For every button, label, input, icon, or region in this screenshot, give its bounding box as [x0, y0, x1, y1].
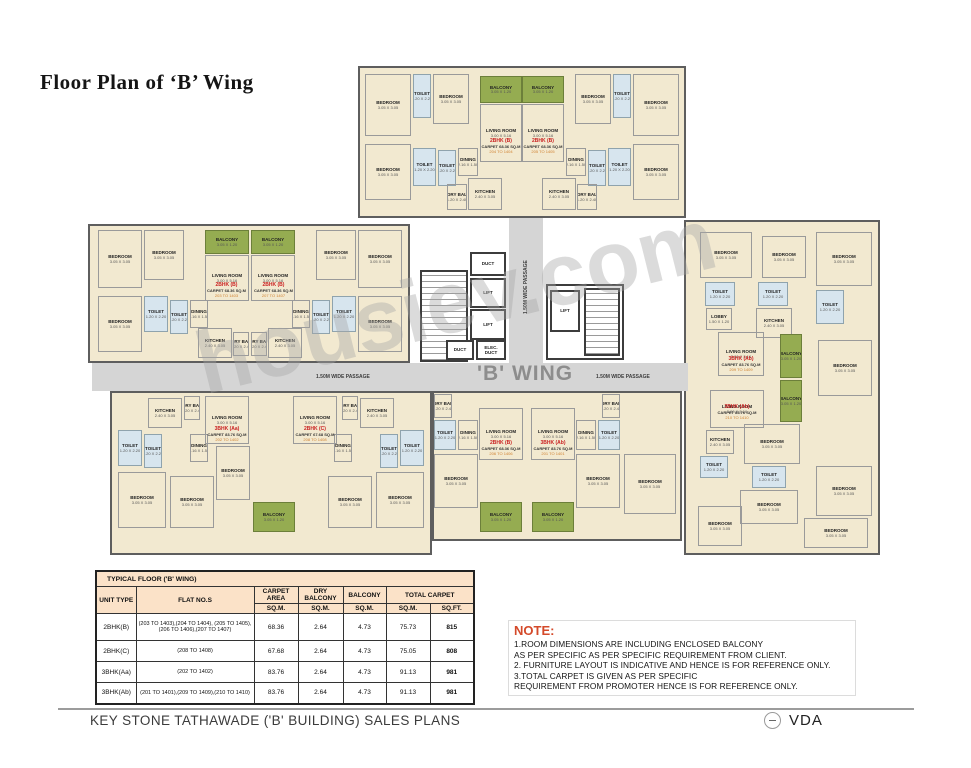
dry-bal-room: DRY BAL1.20 X 2.40	[447, 184, 467, 210]
room-dimensions: 1.20 X 2.20	[763, 295, 783, 299]
cell-dry: 2.64	[298, 683, 343, 704]
bedroom-room: BEDROOM3.05 X 3.05	[316, 230, 356, 280]
note-line: 2. FURNITURE LAYOUT IS INDICATIVE AND HE…	[514, 660, 850, 671]
bedroom-room: BEDROOM3.05 X 3.05	[328, 476, 372, 528]
room-dimensions: 3.05 X 1.20	[533, 90, 553, 94]
room-dimensions: 3.05 X 3.05	[132, 501, 152, 505]
room-dimensions: 1.20 X 2.40	[342, 409, 358, 413]
bedroom-room: BEDROOM3.05 X 3.05	[633, 144, 679, 200]
duct: DUCT	[446, 340, 474, 360]
room-dimensions: 3.05 X 1.20	[264, 518, 284, 522]
toilet: TOILET1.20 X 2.20	[613, 74, 631, 118]
table-row: 3BHK(Aa)(202 TO 1402)83.762.644.7391.139…	[96, 662, 474, 683]
room-dimensions: 3.05 X 3.05	[759, 508, 779, 512]
cell-tsqm: 91.13	[386, 683, 430, 704]
unit-flats-text: 201 TO 1401	[531, 451, 575, 456]
room-dimensions: 2.40 X 3.05	[549, 195, 569, 199]
unit-flats-text: 207 TO 1407	[251, 293, 296, 298]
room-dimensions: 3.05 X 3.05	[390, 501, 410, 505]
toilet: TOILET1.20 X 2.20	[588, 150, 606, 186]
cell-flats: (201 TO 1401),(209 TO 1409),(210 TO 1410…	[136, 683, 254, 704]
room-dimensions: 2.16 X 1.50	[190, 449, 208, 453]
room-dimensions: 3.05 X 3.05	[370, 260, 390, 264]
cell-dry: 2.64	[298, 614, 343, 641]
room-dimensions: 1.20 X 2.20	[312, 318, 330, 322]
room-dimensions: 3.00 X 5.16	[305, 421, 325, 425]
cell-carpet: 67.68	[254, 641, 298, 662]
room-dimensions: 2.40 X 3.05	[205, 344, 225, 348]
room-dimensions: 3.05 X 3.05	[716, 256, 736, 260]
room-dimensions: 1.50 X 1.20	[709, 320, 729, 324]
room-dimensions: 3.05 X 3.05	[762, 445, 782, 449]
room-dimensions: 3.05 X 1.20	[263, 243, 283, 247]
core-label: LIFT	[483, 322, 493, 327]
room-dimensions: 1.20 X 2.20	[146, 315, 166, 319]
kitchen-room: KITCHEN2.40 X 3.05	[360, 398, 394, 428]
table-title: TYPICAL FLOOR ('B' WING)	[96, 571, 474, 587]
cell-dry: 2.64	[298, 662, 343, 683]
bedroom-room: BEDROOM3.05 X 3.05	[376, 472, 424, 528]
dining-room: DINING2.16 X 1.50	[576, 420, 596, 450]
col-balcony: BALCONY	[343, 587, 386, 604]
cell-unit: 2BHK(B)	[96, 614, 136, 641]
bedroom-room: BEDROOM3.05 X 3.05	[740, 490, 798, 524]
bedroom-room: BEDROOM3.05 X 3.05	[118, 472, 166, 528]
bedroom-room: BEDROOM3.05 X 3.05	[433, 74, 469, 124]
room-dimensions: 3.00 X 5.16	[491, 435, 511, 439]
unit-type-label: 2BHK (B)CARPET 68.36 SQ.M204 TO 1404	[479, 138, 523, 156]
room-dimensions: 3.05 X 1.20	[781, 402, 801, 406]
bedroom-room: BEDROOM3.05 X 3.05	[816, 232, 872, 286]
cell-tsqft: 981	[430, 662, 474, 683]
cell-unit: 3BHK(Aa)	[96, 662, 136, 683]
room-dimensions: 1.20 X 2.40	[184, 409, 200, 413]
kitchen-room: KITCHEN2.40 X 3.05	[268, 328, 302, 358]
room-dimensions: 3.05 X 3.05	[646, 173, 666, 177]
note-line: REQUIREMENT FROM PROMOTER HENCE IS FOR R…	[514, 681, 850, 692]
toilet: TOILET1.20 X 2.20	[144, 434, 162, 468]
vda-logo: VDA	[764, 712, 823, 729]
unit-sqm: SQ.M.	[343, 604, 386, 614]
lift: LIFT	[550, 290, 580, 332]
room-dimensions: 1.20 X 2.20	[414, 168, 434, 172]
unit-flats-text: 204 TO 1404	[479, 149, 523, 154]
unit-flats-text: 205 TO 1405	[521, 149, 565, 154]
note-heading: NOTE:	[514, 624, 850, 639]
unit-type-label: 3BHK (Ab)CARPET 83.76 SQ.M209 TO 1409	[716, 356, 766, 374]
room-dimensions: 1.20 X 2.20	[613, 97, 631, 101]
room-dimensions: 3.05 X 3.05	[710, 527, 730, 531]
room-dimensions: 1.20 X 2.40	[447, 198, 467, 202]
core-label: LIFT	[483, 290, 493, 295]
room-dimensions: 3.00 X 5.16	[217, 421, 237, 425]
room-dimensions: 3.05 X 3.05	[441, 100, 461, 104]
room-dimensions: 2.40 X 3.05	[710, 443, 730, 447]
bedroom-room: BEDROOM3.05 X 3.05	[816, 466, 872, 516]
toilet: TOILET1.20 X 2.20	[816, 290, 844, 324]
dry-bal-room: DRY BAL1.20 X 2.40	[251, 332, 267, 356]
toilet: TOILET1.20 X 2.20	[752, 466, 786, 488]
footer-divider	[58, 708, 914, 710]
dry-bal-room: DRY BAL1.20 X 2.40	[184, 396, 200, 420]
kitchen-room: KITCHEN2.40 X 3.05	[148, 398, 182, 428]
balcony: BALCONY3.05 X 1.20	[522, 76, 564, 103]
unit-type-label: 2BHK (B)CARPET 68.36 SQ.M205 TO 1405	[521, 138, 565, 156]
room-dimensions: 3.05 X 3.05	[834, 260, 854, 264]
unit-type-label: 2BHK (C)CARPET 67.68 SQ.M208 TO 1408	[293, 426, 337, 444]
balcony: BALCONY3.05 X 1.20	[532, 502, 574, 532]
room-dimensions: 2.16 X 1.50	[458, 436, 478, 440]
passage-label-right: 1.50M WIDE PASSAGE	[596, 374, 650, 380]
room-dimensions: 1.20 X 2.20	[334, 315, 354, 319]
room-dimensions: 3.05 X 3.05	[340, 503, 360, 507]
unit-flats-text: 206 TO 1406	[479, 451, 523, 456]
cell-tsqft: 981	[430, 683, 474, 704]
unit-flats-text: 202 TO 1402	[205, 437, 249, 442]
bedroom-room: BEDROOM3.05 X 3.05	[744, 424, 800, 464]
wing-label: 'B' WING	[477, 362, 573, 386]
room-dimensions: 1.20 X 2.40	[434, 407, 452, 411]
duct: DUCT	[470, 252, 506, 276]
unit-type-label: 3BHK (Ab)CARPET 83.76 SQ.M201 TO 1401	[531, 440, 575, 458]
toilet: TOILET1.20 X 2.20	[758, 282, 788, 306]
toilet: TOILET1.20 X 2.20	[144, 296, 168, 332]
bedroom-room: BEDROOM3.05 X 3.05	[358, 296, 402, 352]
room-dimensions: 1.20 X 2.20	[820, 308, 840, 312]
cell-bal: 4.73	[343, 641, 386, 662]
room-dimensions: 2.40 X 3.05	[155, 414, 175, 418]
unit-flats-text: 209 TO 1409	[716, 367, 766, 372]
room-dimensions: 3.05 X 3.05	[774, 258, 794, 262]
balcony: BALCONY3.05 X 1.20	[780, 380, 802, 422]
dry-bal-room: DRY BAL1.20 X 2.40	[434, 394, 452, 418]
dry-bal-room: DRY BAL1.20 X 2.40	[577, 184, 597, 210]
elec-duct: ELEC. DUCT	[476, 340, 506, 360]
dry-bal-room: DRY BAL1.20 X 2.40	[233, 332, 249, 356]
unit-sqft: SQ.FT.	[430, 604, 474, 614]
core-label: ELEC. DUCT	[478, 345, 504, 356]
lobby-room: LOBBY1.50 X 1.20	[706, 308, 732, 330]
staircase	[584, 288, 620, 356]
core-label: DUCT	[454, 347, 467, 352]
room-dimensions: 3.05 X 1.20	[543, 518, 563, 522]
bedroom-room: BEDROOM3.05 X 3.05	[365, 144, 411, 200]
room-dimensions: 2.16 X 1.50	[190, 315, 208, 319]
unit-type-label: 3BHK (Aa)CARPET 83.76 SQ.M202 TO 1402	[205, 426, 249, 444]
lift: LIFT	[470, 278, 506, 308]
bedroom-room: BEDROOM3.05 X 3.05	[633, 74, 679, 136]
room-dimensions: 3.05 X 3.05	[583, 100, 603, 104]
kitchen-room: KITCHEN2.40 X 3.05	[706, 430, 734, 454]
room-dimensions: 2.16 X 1.50	[576, 436, 596, 440]
room-dimensions: 2.16 X 1.50	[458, 163, 478, 167]
room-dimensions: 1.20 X 2.20	[710, 295, 730, 299]
toilet: TOILET1.20 X 2.20	[434, 420, 456, 450]
core-label: LIFT	[560, 308, 570, 313]
cell-flats: (208 TO 1408)	[136, 641, 254, 662]
room-dimensions: 3.05 X 3.05	[370, 325, 390, 329]
toilet: TOILET1.20 X 2.20	[413, 148, 436, 186]
col-unit-type: UNIT TYPE	[96, 587, 136, 614]
bedroom-room: BEDROOM3.05 X 3.05	[170, 476, 214, 528]
unit-flats-text: 210 TO 1410	[710, 415, 764, 420]
balcony: BALCONY3.05 X 1.20	[205, 230, 249, 254]
room-dimensions: 3.05 X 3.05	[640, 485, 660, 489]
kitchen-room: KITCHEN2.40 X 3.05	[198, 328, 232, 358]
table-row: 2BHK(B)(203 TO 1403),(204 TO 1404), (205…	[96, 614, 474, 641]
room-dimensions: 3.05 X 3.05	[378, 173, 398, 177]
unit-type-label: 2BHK (B)CARPET 68.36 SQ.M203 TO 1403	[204, 282, 249, 300]
unit-type-label: 2BHK (B)CARPET 68.36 SQ.M207 TO 1407	[251, 282, 296, 300]
note-line: AS PER SPECIFIC AS PER SPECIFIC REQUIREM…	[514, 650, 850, 661]
balcony: BALCONY3.05 X 1.20	[480, 76, 522, 103]
room-dimensions: 1.20 X 2.20	[588, 169, 606, 173]
toilet: TOILET1.20 X 2.20	[332, 296, 356, 332]
note-lines: 1.ROOM DIMENSIONS ARE INCLUDING ENCLOSED…	[514, 639, 850, 692]
kitchen-room: KITCHEN2.40 X 3.05	[468, 178, 502, 210]
toilet: TOILET1.20 X 2.20	[118, 430, 142, 466]
room-dimensions: 3.05 X 3.05	[826, 534, 846, 538]
cell-bal: 4.73	[343, 683, 386, 704]
bedroom-room: BEDROOM3.05 X 3.05	[216, 446, 250, 500]
col-total-carpet: TOTAL CARPET	[386, 587, 474, 604]
cell-bal: 4.73	[343, 662, 386, 683]
room-dimensions: 1.20 X 2.40	[233, 345, 249, 349]
room-dimensions: 2.16 X 1.50	[334, 449, 352, 453]
cell-bal: 4.73	[343, 614, 386, 641]
cell-carpet: 83.76	[254, 662, 298, 683]
room-dimensions: 3.05 X 3.05	[223, 474, 243, 478]
room-dimensions: 1.20 X 2.20	[609, 168, 629, 172]
room-dimensions: 1.20 X 2.20	[438, 169, 456, 173]
room-dimensions: 2.40 X 3.05	[764, 324, 784, 328]
unit-sqm: SQ.M.	[254, 604, 298, 614]
unit-flats-text: 203 TO 1403	[204, 293, 249, 298]
col-carpet-area: CARPET AREA	[254, 587, 298, 604]
vda-logo-text: VDA	[789, 712, 823, 729]
room-dimensions: 3.05 X 3.05	[110, 260, 130, 264]
room-dimensions: 1.20 X 2.20	[599, 436, 619, 440]
room-dimensions: 1.20 X 2.40	[251, 345, 267, 349]
bedroom-room: BEDROOM3.05 X 3.05	[576, 454, 620, 508]
bedroom-room: BEDROOM3.05 X 3.05	[144, 230, 184, 280]
table-row: 2BHK(C)(208 TO 1408)67.682.644.7375.0580…	[96, 641, 474, 662]
bedroom-room: BEDROOM3.05 X 3.05	[818, 340, 872, 396]
room-dimensions: 3.05 X 3.05	[834, 492, 854, 496]
cell-tsqm: 75.05	[386, 641, 430, 662]
room-dimensions: 1.20 X 2.20	[120, 449, 140, 453]
passage-label-vertical: 1.50M WIDE PASSAGE	[523, 262, 529, 314]
bedroom-room: BEDROOM3.05 X 3.05	[365, 74, 411, 136]
room-dimensions: 1.20 X 2.40	[577, 198, 597, 202]
room-dimensions: 3.05 X 3.05	[110, 325, 130, 329]
room-dimensions: 3.05 X 3.05	[154, 256, 174, 260]
balcony: BALCONY3.05 X 1.20	[253, 502, 295, 532]
note-box: NOTE: 1.ROOM DIMENSIONS ARE INCLUDING EN…	[508, 620, 856, 696]
kitchen-room: KITCHEN2.40 X 3.05	[542, 178, 576, 210]
room-dimensions: 3.05 X 3.05	[835, 369, 855, 373]
bedroom-room: BEDROOM3.05 X 3.05	[358, 230, 402, 288]
cell-carpet: 83.76	[254, 683, 298, 704]
unit-sqm: SQ.M.	[298, 604, 343, 614]
bedroom-room: BEDROOM3.05 X 3.05	[700, 232, 752, 278]
room-dimensions: 1.20 X 2.20	[413, 97, 431, 101]
bedroom-room: BEDROOM3.05 X 3.05	[434, 454, 478, 508]
unit-type-label: 3BHK (Ab)CARPET 83.76 SQ.M210 TO 1410	[710, 404, 764, 422]
col-dry-balcony: DRY BALCONY	[298, 587, 343, 604]
bedroom-room: BEDROOM3.05 X 3.05	[98, 296, 142, 352]
room-dimensions: 1.20 X 2.40	[602, 407, 620, 411]
vda-circle-icon	[764, 712, 781, 729]
cell-flats: (202 TO 1402)	[136, 662, 254, 683]
room-dimensions: 2.16 X 1.50	[292, 315, 310, 319]
dining-room: DINING2.16 X 1.50	[458, 148, 478, 176]
area-table: TYPICAL FLOOR ('B' WING) UNIT TYPE FLAT …	[95, 570, 475, 705]
room-dimensions: 3.05 X 3.05	[446, 482, 466, 486]
toilet: TOILET1.20 X 2.20	[705, 282, 735, 306]
bedroom-room: BEDROOM3.05 X 3.05	[98, 230, 142, 288]
room-dimensions: 3.05 X 1.20	[491, 518, 511, 522]
dry-bal-room: DRY BAL1.20 X 2.40	[342, 396, 358, 420]
toilet: TOILET1.20 X 2.20	[598, 420, 620, 450]
cell-unit: 2BHK(C)	[96, 641, 136, 662]
cell-dry: 2.64	[298, 641, 343, 662]
room-dimensions: 1.20 X 2.20	[380, 452, 398, 456]
toilet: TOILET1.20 X 2.20	[608, 148, 631, 186]
room-dimensions: 3.05 X 1.20	[781, 357, 801, 361]
room-dimensions: 1.20 X 2.20	[759, 478, 779, 482]
toilet: TOILET1.20 X 2.20	[400, 430, 424, 466]
toilet: TOILET1.20 X 2.20	[170, 300, 188, 334]
room-dimensions: 3.05 X 3.05	[326, 256, 346, 260]
room-dimensions: 3.00 X 5.16	[543, 435, 563, 439]
bedroom-room: BEDROOM3.05 X 3.05	[575, 74, 611, 124]
cell-tsqm: 91.13	[386, 662, 430, 683]
bedroom-room: BEDROOM3.05 X 3.05	[624, 454, 676, 514]
cell-carpet: 68.36	[254, 614, 298, 641]
dry-bal-room: DRY BAL1.20 X 2.40	[602, 394, 620, 418]
room-dimensions: 1.20 X 2.20	[704, 468, 724, 472]
balcony: BALCONY3.05 X 1.20	[480, 502, 522, 532]
balcony: BALCONY3.05 X 1.20	[780, 334, 802, 378]
toilet: TOILET1.20 X 2.20	[700, 456, 728, 478]
unit-sqm: SQ.M.	[386, 604, 430, 614]
cell-tsqft: 815	[430, 614, 474, 641]
room-dimensions: 3.05 X 1.20	[217, 243, 237, 247]
table-row: 3BHK(Ab)(201 TO 1401),(209 TO 1409),(210…	[96, 683, 474, 704]
note-line: 3.TOTAL CARPET IS GIVEN AS PER SPECIFIC	[514, 671, 850, 682]
cell-unit: 3BHK(Ab)	[96, 683, 136, 704]
bedroom-room: BEDROOM3.05 X 3.05	[762, 236, 806, 278]
col-flat-nos: FLAT NO.S	[136, 587, 254, 614]
toilet: TOILET1.20 X 2.20	[312, 300, 330, 334]
room-dimensions: 2.40 X 3.05	[367, 414, 387, 418]
cell-tsqft: 808	[430, 641, 474, 662]
cell-flats: (203 TO 1403),(204 TO 1404), (205 TO 140…	[136, 614, 254, 641]
room-dimensions: 2.16 X 1.50	[566, 163, 586, 167]
room-dimensions: 3.05 X 3.05	[182, 503, 202, 507]
dining-room: DINING2.16 X 1.50	[292, 300, 310, 328]
dining-room: DINING2.16 X 1.50	[458, 420, 478, 450]
cell-tsqm: 75.73	[386, 614, 430, 641]
unit-type-label: 2BHK (B)CARPET 68.36 SQ.M206 TO 1406	[479, 440, 523, 458]
unit-flats-text: 208 TO 1408	[293, 437, 337, 442]
footer-title: KEY STONE TATHAWADE ('B' BUILDING) SALES…	[90, 713, 460, 728]
room-dimensions: 1.20 X 2.20	[402, 449, 422, 453]
balcony: BALCONY3.05 X 1.20	[251, 230, 295, 254]
note-line: 1.ROOM DIMENSIONS ARE INCLUDING ENCLOSED…	[514, 639, 850, 650]
room-dimensions: 2.40 X 3.05	[275, 344, 295, 348]
room-dimensions: 1.20 X 2.20	[435, 436, 455, 440]
toilet: TOILET1.20 X 2.20	[413, 74, 431, 118]
dining-room: DINING2.16 X 1.50	[566, 148, 586, 176]
bedroom-room: BEDROOM3.05 X 3.05	[804, 518, 868, 548]
room-dimensions: 3.05 X 3.05	[646, 106, 666, 110]
toilet: TOILET1.20 X 2.20	[438, 150, 456, 186]
passage-label-left: 1.50M WIDE PASSAGE	[316, 374, 370, 380]
bedroom-room: BEDROOM3.05 X 3.05	[698, 506, 742, 546]
room-dimensions: 3.05 X 3.05	[378, 106, 398, 110]
room-dimensions: 1.20 X 2.20	[170, 318, 188, 322]
core-label: DUCT	[482, 261, 495, 266]
room-dimensions: 3.05 X 3.05	[588, 482, 608, 486]
lift: LIFT	[470, 309, 506, 340]
toilet: TOILET1.20 X 2.20	[380, 434, 398, 468]
room-dimensions: 2.40 X 3.05	[475, 195, 495, 199]
room-dimensions: 1.20 X 2.20	[144, 452, 162, 456]
room-dimensions: 3.05 X 1.20	[491, 90, 511, 94]
dining-room: DINING2.16 X 1.50	[190, 300, 208, 328]
